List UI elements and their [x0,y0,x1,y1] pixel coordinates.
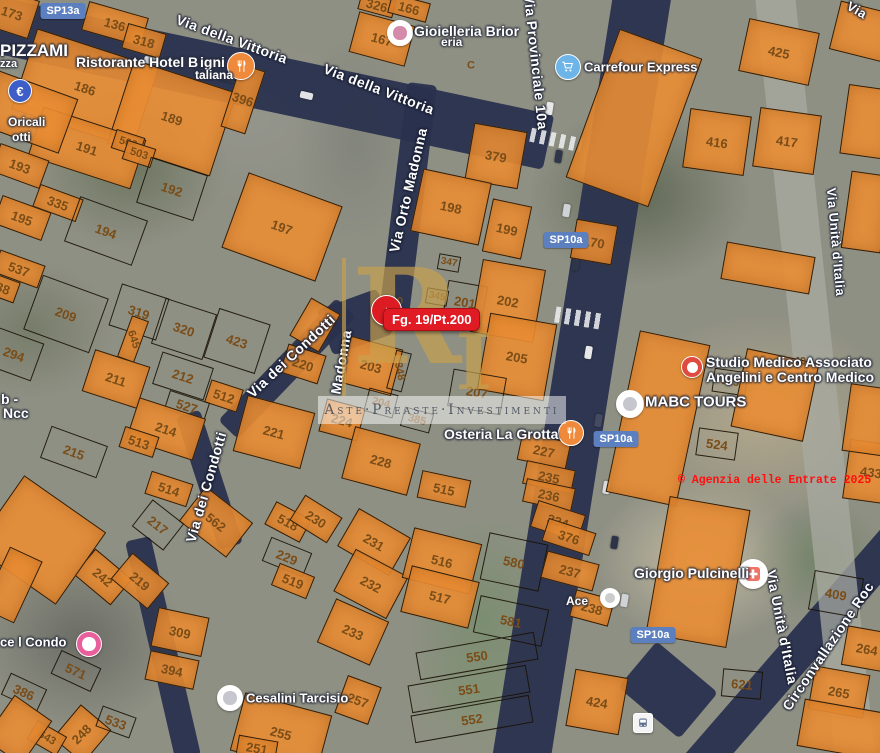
jewelry-icon[interactable] [387,20,413,46]
parcel-394[interactable]: 394 [144,650,199,690]
parcel-416[interactable]: 416 [682,108,752,176]
parcel-228[interactable]: 228 [341,426,421,496]
parcel-number: 503 [129,146,150,162]
poi-label: zza [0,58,17,70]
marker-label[interactable]: Fg. 19/Pt.200 [383,308,480,331]
parcel-number: 228 [369,452,393,470]
parcel-number: 512 [212,386,237,405]
parcel-number: 645 [125,329,141,350]
route-badge: SP13a [40,3,85,19]
parcel-number: 230 [303,508,328,531]
parcel-number: 396 [231,89,256,108]
parcel-number: 515 [432,480,456,497]
parcel-number: 231 [361,531,386,553]
parcel-number: 192 [160,179,185,198]
parcel-number: 219 [128,569,153,593]
parcel-number: 513 [127,432,152,451]
parcel[interactable] [841,383,880,456]
parcel-number: 215 [62,442,87,462]
parcel-number: 203 [359,357,383,375]
vehicle [562,203,571,217]
poi-label: Gioielleria Brior [414,23,519,39]
parcel-417[interactable]: 417 [752,107,822,175]
shop-icon[interactable] [217,685,243,711]
poi-label: Ristorante Hotel B [76,54,198,70]
copyright-attribution: © Agenzia delle Entrate 2025 [678,474,871,487]
route-badge: SP10a [543,232,588,248]
parcel-number: 417 [775,133,798,149]
poi-label: MABC TOURS [645,394,746,411]
parcel-519[interactable]: 519 [271,563,315,599]
shop-icon[interactable] [76,631,102,657]
watermark-text: Aste·Preaste·Investimenti [325,402,560,418]
parcel-number: 191 [75,138,100,157]
vehicle [620,593,629,607]
parcel-199[interactable]: 199 [482,198,532,259]
parcel-number: 562 [203,510,228,534]
route-badge: SP10a [593,431,638,447]
parcel-number: 136 [103,15,127,33]
parcel-number: 318 [132,32,156,50]
parcel-221[interactable]: 221 [233,395,316,469]
parcel-number: 581 [499,612,523,629]
poi-label: eria [441,35,462,49]
parcel-number: 416 [705,134,728,150]
map-canvas[interactable]: R I Aste·Preaste·Investimenti ▲ Fg. 19/P… [0,0,880,753]
parcel[interactable] [839,84,880,160]
parcel-number: 394 [160,661,184,678]
parcel-number: 264 [855,641,879,658]
poi-label: Studio Medico Associato [706,354,872,370]
parcel-number: 257 [346,690,371,710]
parcel-number: 524 [705,436,728,452]
parcel-number: 194 [94,221,119,241]
parcel-198[interactable]: 198 [410,168,492,245]
parcel[interactable] [566,29,703,208]
parcel-number: 424 [585,694,609,711]
parcel-number: 423 [225,331,250,350]
parcel-number: 552 [460,711,483,727]
parcel-number: 205 [505,349,529,366]
parcel-number: 537 [7,259,32,279]
parcel-number: 514 [157,479,182,498]
vehicle [584,345,593,359]
parcel-number: 212 [171,366,196,385]
poi-label: Carrefour Express [584,60,697,75]
poi-label: ce l Condo [0,635,66,650]
parcel-215[interactable]: 215 [40,426,108,478]
poi-label: taliana [195,68,233,82]
parcel-number: 248 [70,722,95,747]
poi-label: Ace [566,594,588,608]
parcel-number: 519 [280,571,305,591]
parcel-194[interactable]: 194 [64,196,148,266]
parcel-number: 533 [104,712,129,732]
parcel-number: 255 [269,724,293,742]
poi-label: Cesalini Tarcisio [246,691,348,706]
parcel-515[interactable]: 515 [417,470,472,508]
parcel-number: 580 [502,553,526,570]
parcel-number: 425 [767,43,791,60]
parcel-number: 211 [104,370,128,389]
medical-pin-icon[interactable] [681,356,703,378]
parcel-number: 621 [731,677,754,692]
parcel-number: 348 [392,361,407,381]
vehicle [610,535,619,549]
parcel-number: 309 [168,623,192,640]
parcel-number: 516 [430,552,454,570]
poi-circle-icon[interactable] [600,588,620,608]
parcel-number: 195 [10,208,35,228]
parcel-197[interactable]: 197 [221,172,342,281]
parcel-number: 221 [262,423,286,441]
parcel-number: 232 [358,573,383,595]
parcel-571[interactable]: 571 [51,650,102,692]
parcel-512[interactable]: 512 [204,379,244,412]
parcel-424[interactable]: 424 [565,669,628,735]
watermark-band: Aste·Preaste·Investimenti [318,396,566,424]
parcel-number: 517 [428,588,452,606]
parcel-621[interactable]: 621 [721,668,763,699]
parcel-number: 38 [0,279,12,296]
parcel-number: 197 [270,217,295,237]
parcel-number: 294 [2,344,27,364]
parcel-number: 202 [496,293,520,310]
poi-label: otti [12,130,31,144]
vehicle [594,413,603,427]
parcel-number: 166 [397,0,421,17]
parcel-number: 233 [340,622,365,643]
parcel-number: 320 [172,319,197,338]
parcel-number: 251 [245,740,269,753]
parcel[interactable] [841,171,880,254]
parcel-number: 189 [160,108,185,127]
parcel-number: 193 [8,156,33,176]
parcel-number: 237 [558,562,582,580]
parcel-number: 571 [63,661,88,682]
supermarket-cart-icon[interactable] [555,54,581,80]
parcel-347[interactable]: 347 [437,253,461,273]
parcel-425[interactable]: 425 [738,18,820,86]
parcel-number: 209 [54,304,79,324]
parcel-number: 345 [428,291,446,304]
vehicle [554,149,563,163]
parcel-number: 335 [46,193,71,213]
parcel-number: 198 [439,198,463,215]
parcel-number: 550 [465,648,488,664]
parcel-number: 551 [457,681,480,697]
parcel-number: 347 [440,257,458,270]
euro-icon[interactable]: € [8,79,32,103]
parcel-number: 217 [145,513,170,537]
parcel-number: 199 [495,220,519,237]
parcel-number: 227 [532,442,556,459]
bus-stop-icon[interactable] [633,713,653,733]
parcel-number: 265 [827,684,851,701]
parcel-number: 173 [0,3,24,22]
parcel-number: 326 [365,0,389,14]
parcel-number: 379 [484,148,508,165]
poi-label: Oricali [8,115,45,129]
tours-icon[interactable] [616,390,644,418]
parcel-number: C [467,61,475,72]
parcel-number: 186 [73,78,98,97]
poi-label: Osteria La Grotta [444,426,558,442]
poi-label: Angelini e Centro Medico [706,369,874,385]
parcel-524[interactable]: 524 [695,427,739,460]
route-badge: SP10a [630,627,675,643]
parcel-number: 376 [557,527,582,546]
poi-label: Giorgio Pulcinelli [634,565,749,581]
parcel-number: 409 [824,586,848,603]
parcel-212[interactable]: 212 [152,351,214,400]
poi-label: Ncc [3,405,29,421]
